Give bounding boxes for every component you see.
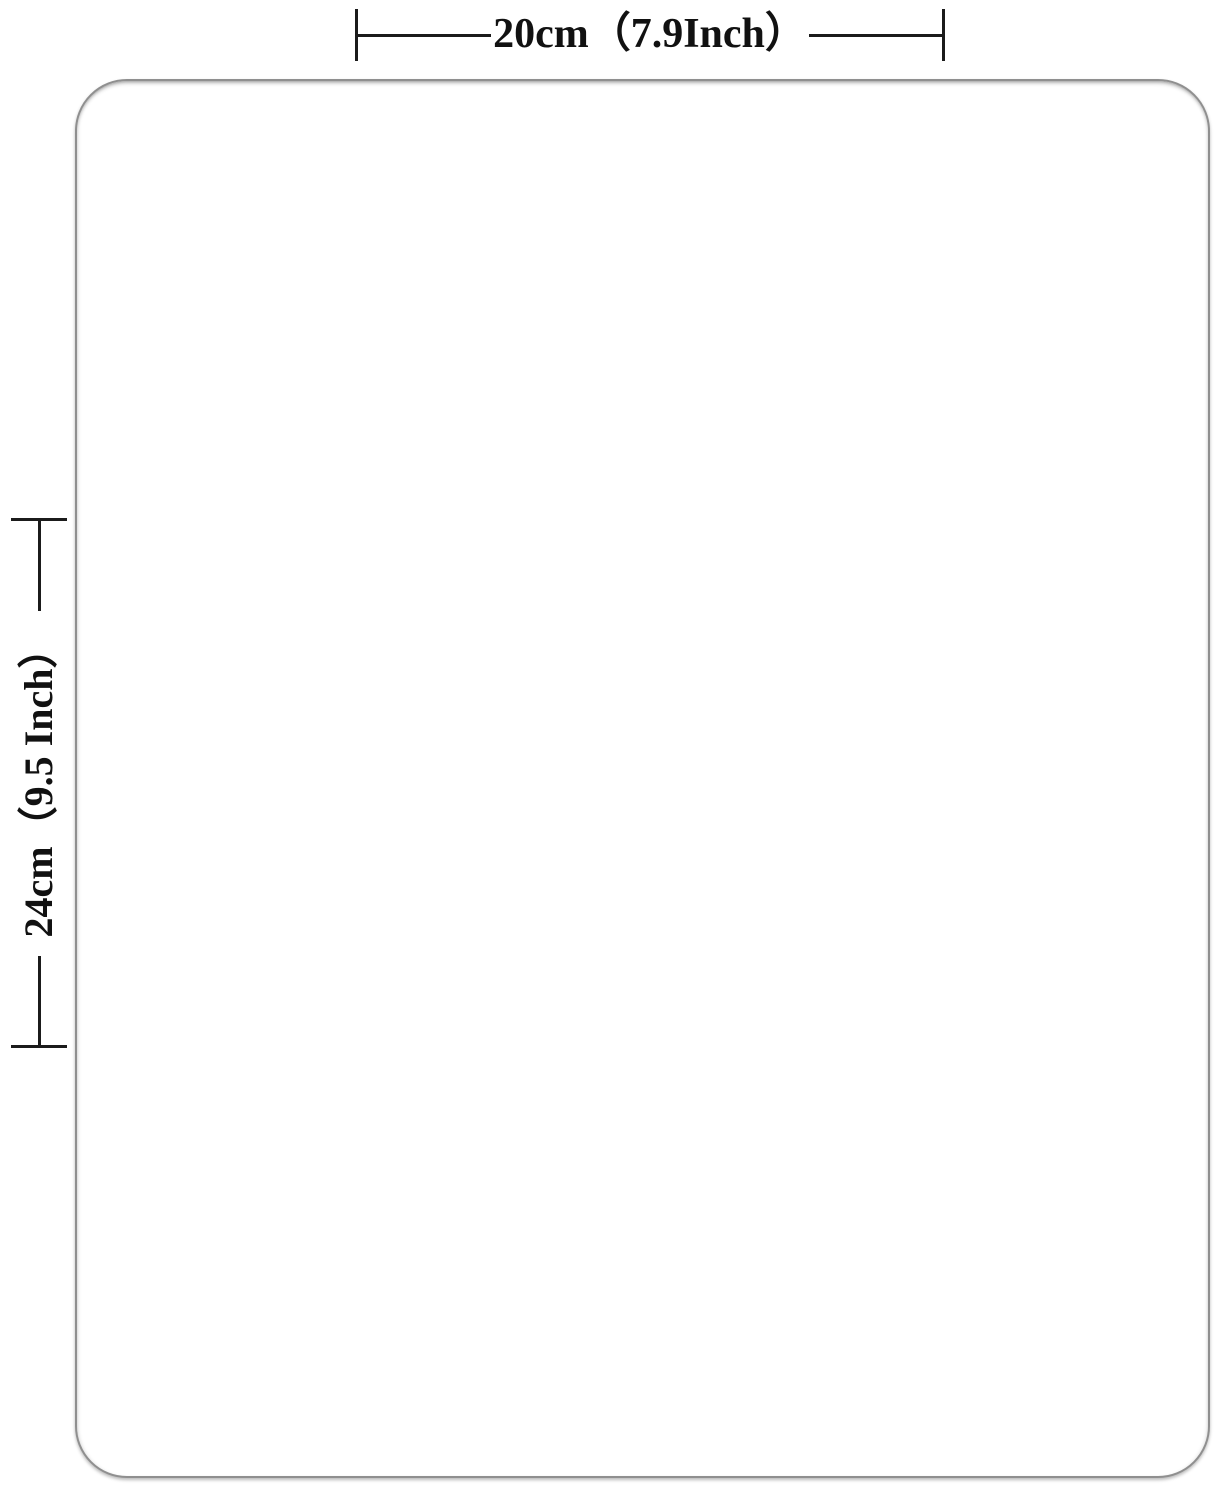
height-dimension-bottom-tick bbox=[11, 1045, 67, 1048]
product-pad bbox=[75, 79, 1210, 1478]
width-dimension-label: 20cm（7.9Inch） bbox=[491, 13, 809, 55]
height-dimension-label: 24cm（9.5 Inch） bbox=[19, 629, 59, 938]
height-dimension: 24cm（9.5 Inch） bbox=[11, 518, 67, 1048]
width-dimension-right-line bbox=[809, 34, 942, 37]
width-dimension-left-line bbox=[358, 34, 491, 37]
height-dimension-top-line bbox=[38, 521, 41, 611]
width-dimension: 20cm（7.9Inch） bbox=[355, 9, 945, 61]
width-dimension-right-tick bbox=[942, 9, 945, 61]
height-dimension-bottom-line bbox=[38, 956, 41, 1046]
height-dimension-label-holder: 24cm（9.5 Inch） bbox=[11, 611, 67, 956]
